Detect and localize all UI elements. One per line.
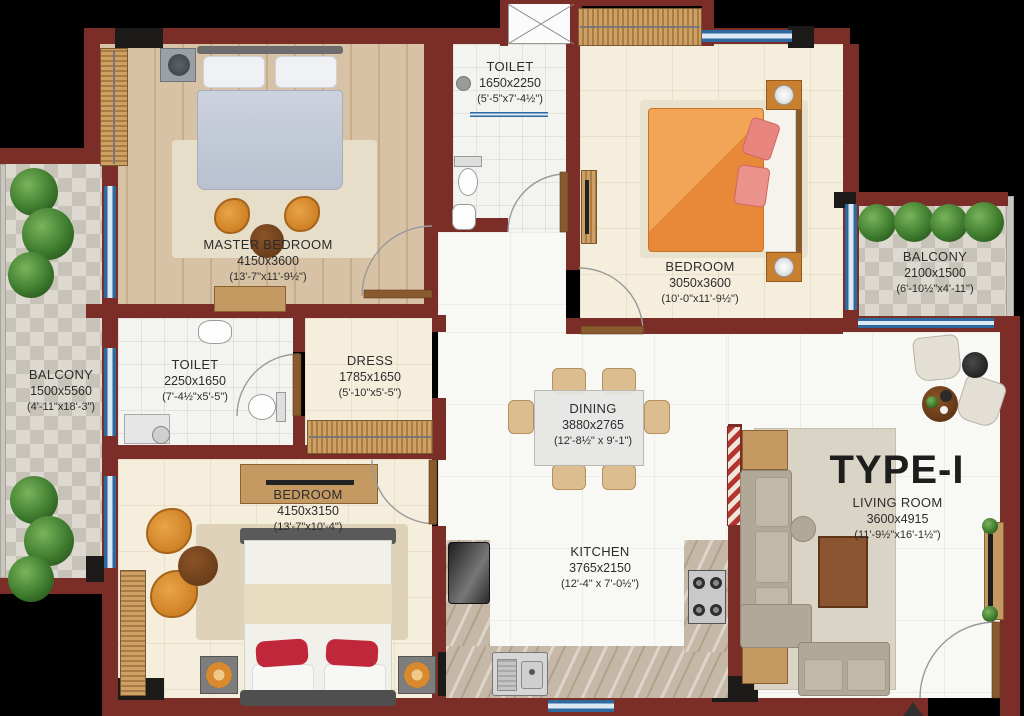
bedroom-bottom-tv xyxy=(266,480,354,485)
toilet-left-label: TOILET 2250x1650 (7'-4½"x5'-5") xyxy=(130,356,260,404)
wall-bedroom-top-bottom xyxy=(566,318,843,334)
window-bedroom-balcony xyxy=(104,476,116,568)
room-dim-ft: (10'-0"x11'-9½") xyxy=(630,292,770,307)
balcony-right-plant-2 xyxy=(894,202,934,242)
lift-shaft xyxy=(508,2,574,44)
mandala-decor-2 xyxy=(404,662,430,688)
toilet-top-wc-tank xyxy=(454,156,482,167)
room-name: TOILET xyxy=(455,58,565,75)
master-bed-headboard xyxy=(197,46,343,54)
refrigerator xyxy=(448,542,490,604)
balcony-left-plant-6 xyxy=(8,556,54,602)
room-dim-ft: (11'-9½"x16'-1½") xyxy=(810,528,985,543)
master-bed-pillow-right xyxy=(275,56,337,88)
master-bed-duvet xyxy=(197,90,343,190)
bedside-table-2 xyxy=(398,656,436,694)
bedroom-top-bed-headboard xyxy=(796,108,802,252)
bed-throw-band xyxy=(244,584,392,624)
stove xyxy=(688,570,726,624)
type-title: TYPE-I xyxy=(798,448,996,493)
master-nightstand-lamp xyxy=(168,54,190,76)
room-dim-ft: (7'-4½"x5'-5") xyxy=(130,390,260,405)
column-balcony-left xyxy=(86,556,104,582)
nightstand-clock-1 xyxy=(774,85,794,105)
room-dim-mm: 3880x2765 xyxy=(523,417,663,434)
wall-lift-left xyxy=(500,0,508,46)
duct-hatch xyxy=(727,426,741,526)
window-master-balcony xyxy=(104,186,116,298)
room-dim-mm: 4150x3600 xyxy=(178,253,358,270)
tv-plant-bottom xyxy=(982,606,998,622)
master-bed-pillow-left xyxy=(203,56,265,88)
room-dim-mm: 3050x3600 xyxy=(630,275,770,292)
column-top-master xyxy=(115,28,163,48)
wall-toilet-dress-divider-b xyxy=(293,416,305,446)
bed-pillow-red-1 xyxy=(255,638,309,668)
room-name: DRESS xyxy=(310,352,430,369)
bedroom-top-nightstand-1 xyxy=(766,80,802,110)
balcony-right-plant-3 xyxy=(930,204,968,242)
room-dim-mm: 1650x2250 xyxy=(455,75,565,92)
room-name: LIVING ROOM xyxy=(810,494,985,511)
accent-chair-1 xyxy=(912,334,962,383)
wall-master-right xyxy=(424,28,438,318)
room-name: BEDROOM xyxy=(228,486,388,503)
burner-4 xyxy=(710,604,722,616)
balcony-right-railing xyxy=(1006,196,1014,320)
balcony-right-plant-1 xyxy=(858,204,896,242)
toilet-left-door-leaf xyxy=(293,354,301,416)
room-dim-ft: (6'-10½"x4'-11") xyxy=(865,282,1005,297)
room-dim-ft: (13'-7"x10'-4") xyxy=(228,520,388,535)
kitchen-sink xyxy=(492,652,548,696)
mandala-decor-1 xyxy=(206,662,232,688)
toilet-left-drain xyxy=(152,426,170,444)
room-dim-mm: 4150x3150 xyxy=(228,503,388,520)
room-dim-ft: (12'-8½" x 9'-1") xyxy=(523,434,663,449)
room-name: TOILET xyxy=(130,356,260,373)
room-dim-mm: 1785x1650 xyxy=(310,369,430,386)
loveseat-cushion-2 xyxy=(847,659,886,691)
wall-toilet-top-top xyxy=(438,28,508,44)
bedroom-bottom-round-table xyxy=(178,546,218,586)
room-dim-ft: (12'-4" x 7'-0½") xyxy=(530,577,670,592)
master-bedroom-label: MASTER BEDROOM 4150x3600 (13'-7"x11'-9½"… xyxy=(178,236,358,284)
sofa-cushion-1 xyxy=(755,477,789,527)
burner-3 xyxy=(693,604,705,616)
balcony-left-label: BALCONY 1500x5560 (4'-11"x18'-3") xyxy=(2,366,120,414)
sink-drainboard xyxy=(497,659,517,691)
dress-label: DRESS 1785x1650 (5'-10"x5'-5") xyxy=(310,352,430,400)
toilet-top-wc-bowl xyxy=(458,168,478,196)
table-cup xyxy=(940,406,948,414)
kitchen-counter-bottom xyxy=(446,646,728,698)
living-side-table-top xyxy=(742,430,788,470)
hall-floor-upper xyxy=(438,232,566,332)
bedroom-top-wardrobe-rail xyxy=(580,26,700,28)
wall-toilet-top-right xyxy=(566,44,580,270)
wall-dress-right-b xyxy=(432,398,446,460)
sofa-cushion-2 xyxy=(755,531,789,583)
balcony-right-plant-4 xyxy=(964,202,1004,242)
room-name: MASTER BEDROOM xyxy=(178,236,358,253)
bedroom-bottom-label: BEDROOM 4150x3150 (13'-7"x10'-4") xyxy=(228,486,388,534)
room-dim-mm: 3600x4915 xyxy=(810,511,985,528)
wall-nook-top xyxy=(570,0,714,6)
room-dim-ft: (4'-11"x18'-3") xyxy=(2,400,120,415)
bedroom-top-tv xyxy=(585,180,589,234)
room-dim-mm: 1500x5560 xyxy=(2,383,120,400)
bedroom-top-bed xyxy=(648,108,802,252)
sink-basin xyxy=(521,661,543,689)
room-dim-ft: (5'-5"x7'-4½") xyxy=(455,92,565,107)
bedroom-top-label: BEDROOM 3050x3600 (10'-0"x11'-9½") xyxy=(630,258,770,306)
bedroom-top-pillow-2 xyxy=(733,164,770,208)
balcony-left-plant-3 xyxy=(8,252,54,298)
room-dim-ft: (13'-7"x11'-9½") xyxy=(178,270,358,285)
room-name: BALCONY xyxy=(865,248,1005,265)
burner-1 xyxy=(693,577,705,589)
room-dim-mm: 3765x2150 xyxy=(530,560,670,577)
room-name: DINING xyxy=(523,400,663,417)
window-bedroom-top xyxy=(700,30,792,42)
living-round-table xyxy=(922,386,958,422)
wall-dress-right-a xyxy=(432,315,446,332)
living-side-table-bottom xyxy=(742,646,788,684)
wall-balcony-left-top xyxy=(0,148,102,164)
bedroom-top-tv-console xyxy=(581,170,597,244)
coffee-table xyxy=(818,536,868,608)
dining-chair-bottom-1 xyxy=(552,464,586,490)
toilet-top-basin xyxy=(452,204,476,230)
wall-bottom xyxy=(102,698,928,716)
wall-toilet-dress-divider-a xyxy=(293,318,305,352)
shower-partition-toilet-top xyxy=(470,112,548,117)
nightstand-clock-2 xyxy=(774,257,794,277)
living-loveseat xyxy=(798,642,890,696)
balcony-right-label: BALCONY 2100x1500 (6'-10½"x4'-11") xyxy=(865,248,1005,296)
living-room-label: LIVING ROOM 3600x4915 (11'-9½"x16'-1½") xyxy=(810,494,985,542)
bedroom-bottom-wardrobe xyxy=(120,570,146,696)
toilet-top-label: TOILET 1650x2250 (5'-5"x7'-4½") xyxy=(455,58,565,106)
window-kitchen xyxy=(548,700,614,712)
room-name: KITCHEN xyxy=(530,543,670,560)
wall-bottom-right-corner xyxy=(1000,694,1020,716)
table-plant xyxy=(926,396,938,408)
room-name: BEDROOM xyxy=(630,258,770,275)
toilet-left-basin xyxy=(198,320,232,344)
dining-label: DINING 3880x2765 (12'-8½" x 9'-1") xyxy=(523,400,663,448)
wall-toilet-top-left xyxy=(438,44,453,232)
bed-headboard xyxy=(240,690,396,706)
room-name: BALCONY xyxy=(2,366,120,383)
bedroom-top-nightstand-2 xyxy=(766,252,802,282)
bed-pillow-red-2 xyxy=(325,639,378,668)
window-bedroom-balcony-right xyxy=(845,204,857,310)
table-kettle xyxy=(940,390,952,402)
loveseat-cushion-1 xyxy=(804,659,843,691)
master-bed xyxy=(197,46,343,190)
floor-lamp xyxy=(962,352,988,378)
room-dim-ft: (5'-10"x5'-5") xyxy=(310,386,430,401)
kitchen-label: KITCHEN 3765x2150 (12'-4" x 7'-0½") xyxy=(530,543,670,591)
living-tv xyxy=(988,534,993,606)
master-wardrobe-rail xyxy=(113,50,115,164)
room-dim-mm: 2100x1500 xyxy=(865,265,1005,282)
room-dim-mm: 2250x1650 xyxy=(130,373,260,390)
wall-living-right xyxy=(1000,316,1020,700)
bedside-table-1 xyxy=(200,656,238,694)
dress-wardrobe-rail xyxy=(309,436,431,438)
wall-left-upper xyxy=(84,28,100,164)
master-dresser xyxy=(214,286,286,312)
bedroom-bottom-bed xyxy=(240,528,396,706)
window-living-balcony xyxy=(858,318,994,328)
burner-2 xyxy=(710,577,722,589)
floor-plan: MASTER BEDROOM 4150x3600 (13'-7"x11'-9½"… xyxy=(0,0,1024,716)
toilet-left-wc-tank xyxy=(276,392,286,422)
sink-faucet xyxy=(529,669,535,675)
dining-chair-bottom-2 xyxy=(602,464,636,490)
